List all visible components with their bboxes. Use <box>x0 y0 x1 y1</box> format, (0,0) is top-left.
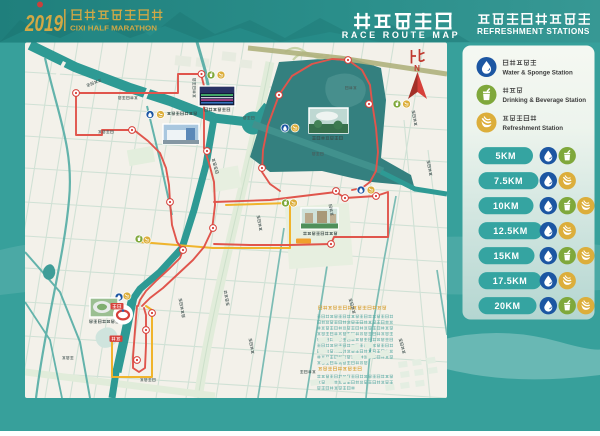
svg-text:5KM: 5KM <box>496 151 517 161</box>
svg-text:Refreshment Station: Refreshment Station <box>503 125 564 132</box>
svg-text:N: N <box>414 64 420 73</box>
svg-text:12.5KM: 12.5KM <box>493 226 528 236</box>
svg-text:2019: 2019 <box>24 10 63 36</box>
svg-text:REFRESHMENT STATIONS: REFRESHMENT STATIONS <box>477 27 590 36</box>
svg-text:Drinking & Beverage Station: Drinking & Beverage Station <box>503 97 587 104</box>
svg-text:7.5KM: 7.5KM <box>494 176 523 186</box>
svg-text:Water & Sponge Station: Water & Sponge Station <box>503 70 573 77</box>
svg-text:20KM: 20KM <box>494 301 520 311</box>
svg-text:17.5KM: 17.5KM <box>493 276 528 286</box>
svg-text:15KM: 15KM <box>493 251 519 261</box>
svg-text:RACE ROUTE MAP: RACE ROUTE MAP <box>342 30 460 40</box>
svg-text:CIXI HALF MARATHON: CIXI HALF MARATHON <box>70 24 157 33</box>
svg-text:10KM: 10KM <box>493 201 519 211</box>
